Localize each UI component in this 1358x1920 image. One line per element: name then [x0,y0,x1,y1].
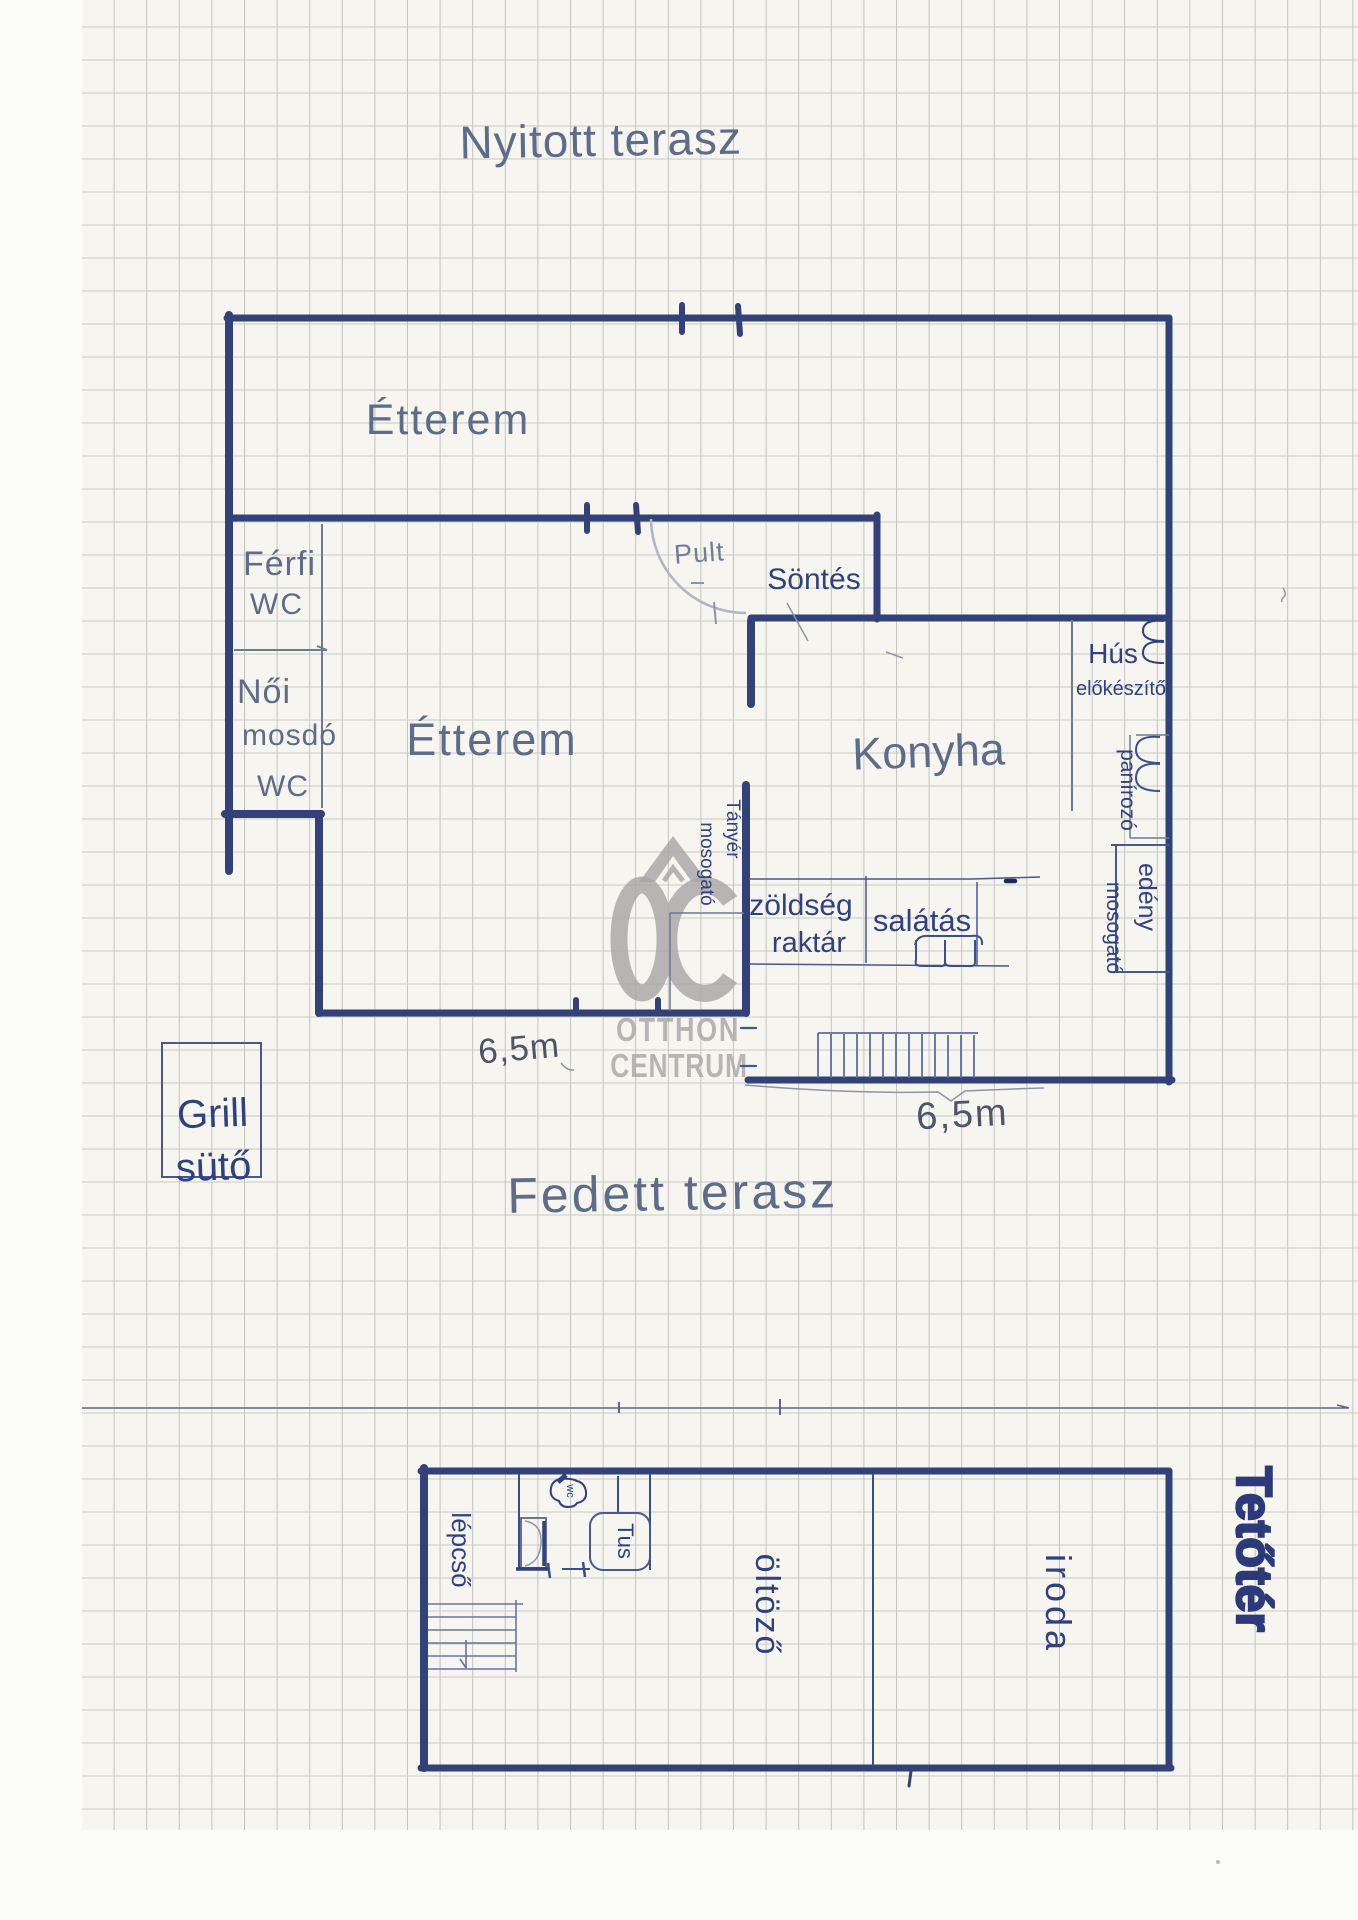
svg-text:Férfi: Férfi [243,545,316,583]
svg-text:Söntés: Söntés [767,563,860,596]
svg-text:zöldség: zöldség [749,889,852,922]
svg-text:Tányér: Tányér [722,799,743,859]
svg-text:Tus: Tus [613,1523,638,1559]
svg-text:előkészítő: előkészítő [1076,678,1166,700]
svg-text:öltöző: öltöző [748,1554,786,1657]
svg-text:6,5m: 6,5m [477,1026,562,1072]
svg-text:WC: WC [250,588,304,621]
svg-text:Konyha: Konyha [851,723,1006,779]
svg-text:lépcső: lépcső [446,1512,476,1587]
svg-text:Étterem: Étterem [406,714,578,765]
svg-text:Hús: Hús [1088,638,1138,669]
svg-text:mosdó: mosdó [242,719,337,752]
svg-text:Étterem: Étterem [366,396,531,444]
svg-text:wc: wc [564,1483,576,1498]
svg-text:OTTHON: OTTHON [616,1013,740,1049]
svg-text:raktár: raktár [772,927,846,959]
svg-text:panírozó: panírozó [1116,749,1139,831]
svg-text:Grill: Grill [176,1091,249,1137]
svg-text:sütő: sütő [175,1144,252,1191]
svg-text:6,5m: 6,5m [915,1092,1010,1139]
svg-text:WC: WC [257,770,309,803]
svg-text:CENTRUM: CENTRUM [610,1048,748,1084]
svg-text:Fedett terasz: Fedett terasz [507,1162,839,1224]
svg-text:edény: edény [1133,863,1161,932]
svg-text:Tetőtér: Tetőtér [1226,1466,1282,1632]
svg-text:salátás: salátás [873,903,971,938]
svg-text:Pult: Pult [673,536,726,569]
svg-text:iroda: iroda [1038,1554,1079,1654]
svg-text:mosogató: mosogató [696,822,717,905]
svg-text:mosogató: mosogató [1102,882,1125,974]
svg-text:Női: Női [237,673,291,711]
svg-text:Nyitott terasz: Nyitott terasz [459,112,742,169]
